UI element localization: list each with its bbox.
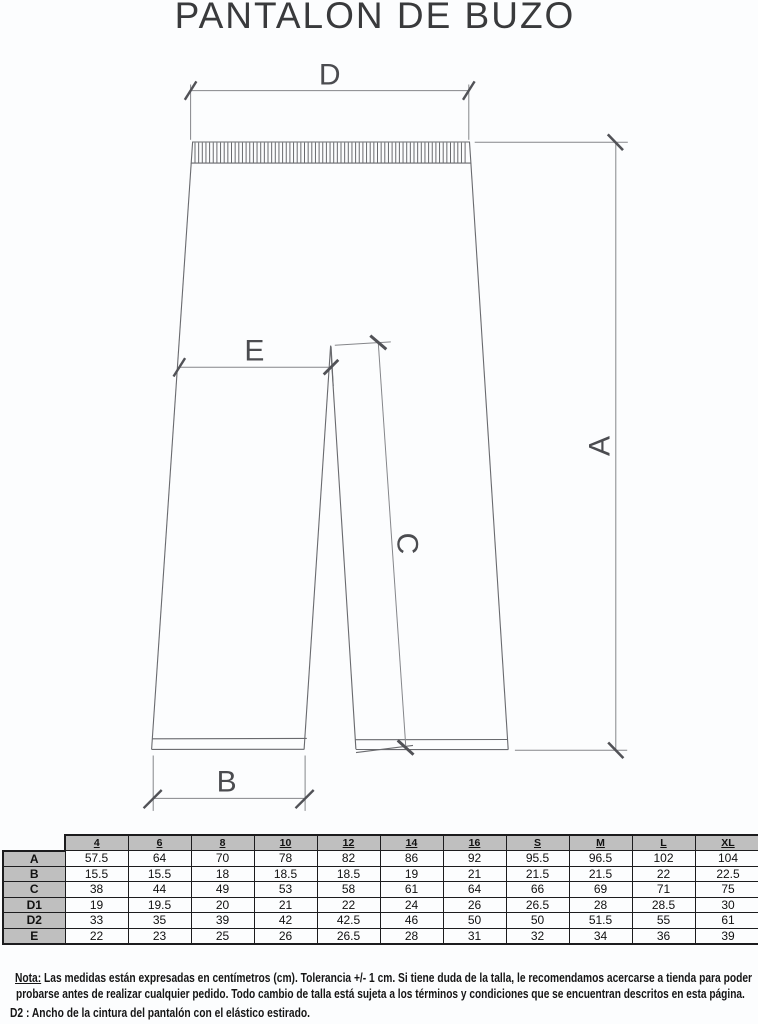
svg-text:E: E bbox=[244, 335, 264, 368]
svg-text:B: B bbox=[217, 766, 237, 799]
svg-text:A: A bbox=[583, 436, 616, 456]
svg-text:C: C bbox=[391, 533, 424, 555]
svg-text:D: D bbox=[319, 59, 341, 92]
